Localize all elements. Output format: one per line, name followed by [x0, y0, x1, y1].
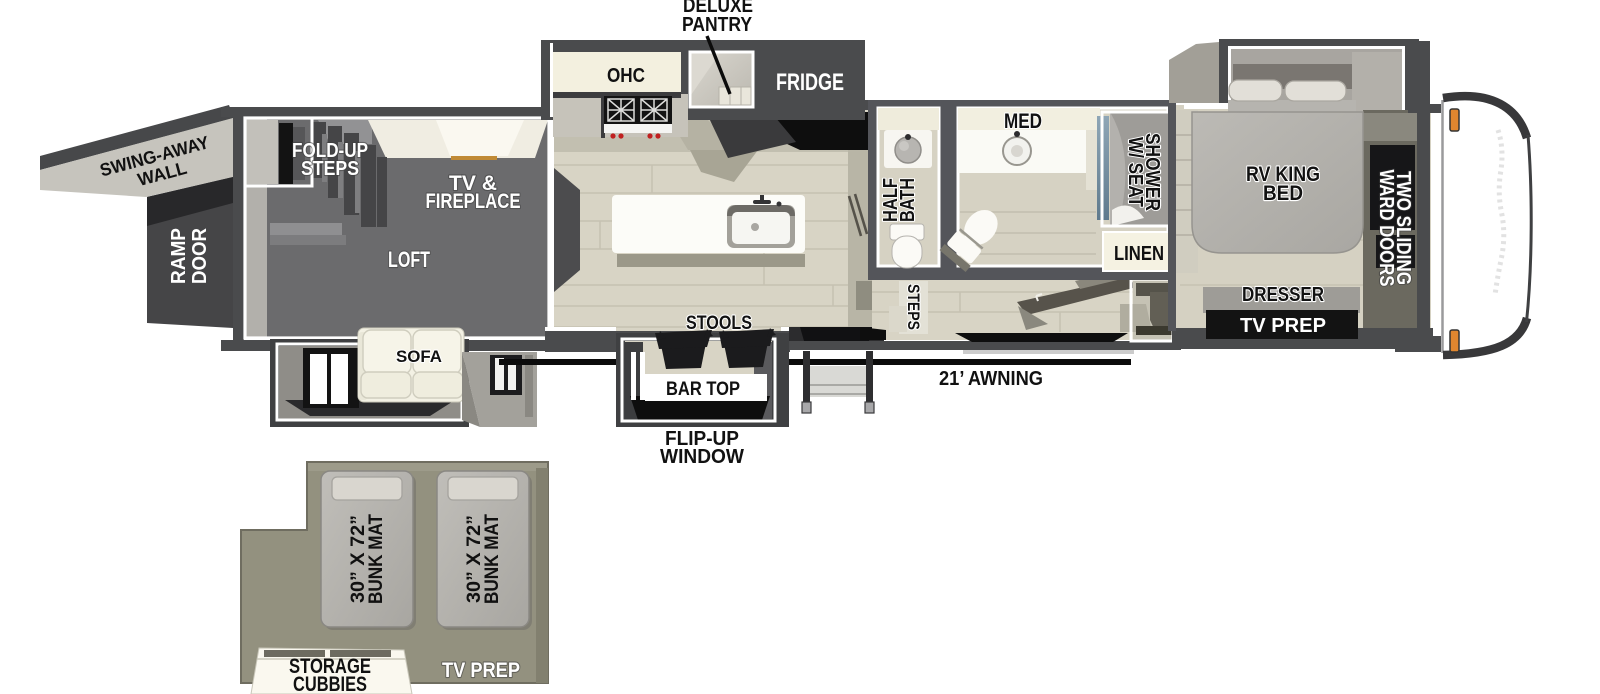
svg-text:FRIDGE: FRIDGE [776, 69, 844, 96]
svg-text:OHC: OHC [607, 65, 645, 87]
svg-text:WARD DOORS: WARD DOORS [1375, 170, 1397, 287]
svg-text:SOFA: SOFA [396, 347, 442, 366]
svg-text:W/ SEAT: W/ SEAT [1124, 137, 1146, 207]
svg-text:BUNK MAT: BUNK MAT [482, 514, 503, 604]
svg-text:DRESSER: DRESSER [1242, 284, 1324, 306]
svg-text:BED: BED [1263, 182, 1303, 205]
svg-text:STEPS: STEPS [301, 158, 359, 180]
svg-text:LOFT: LOFT [388, 247, 430, 272]
svg-text:LINEN: LINEN [1114, 243, 1164, 265]
svg-text:WINDOW: WINDOW [660, 446, 744, 468]
svg-text:TV PREP: TV PREP [1240, 315, 1326, 337]
svg-text:CUBBIES: CUBBIES [293, 673, 367, 694]
svg-text:21’ AWNING: 21’ AWNING [939, 368, 1043, 390]
svg-text:TV PREP: TV PREP [442, 659, 520, 682]
svg-text:PANTRY: PANTRY [682, 14, 753, 36]
svg-text:BATH: BATH [897, 178, 919, 222]
svg-text:STOOLS: STOOLS [686, 312, 752, 334]
svg-text:DOOR: DOOR [189, 227, 211, 284]
svg-text:BAR TOP: BAR TOP [666, 378, 740, 400]
svg-text:MED: MED [1004, 110, 1042, 133]
svg-text:FIREPLACE: FIREPLACE [426, 190, 521, 213]
svg-text:STEPS: STEPS [904, 284, 923, 330]
svg-text:RAMP: RAMP [168, 228, 190, 284]
svg-text:BUNK MAT: BUNK MAT [366, 514, 387, 604]
